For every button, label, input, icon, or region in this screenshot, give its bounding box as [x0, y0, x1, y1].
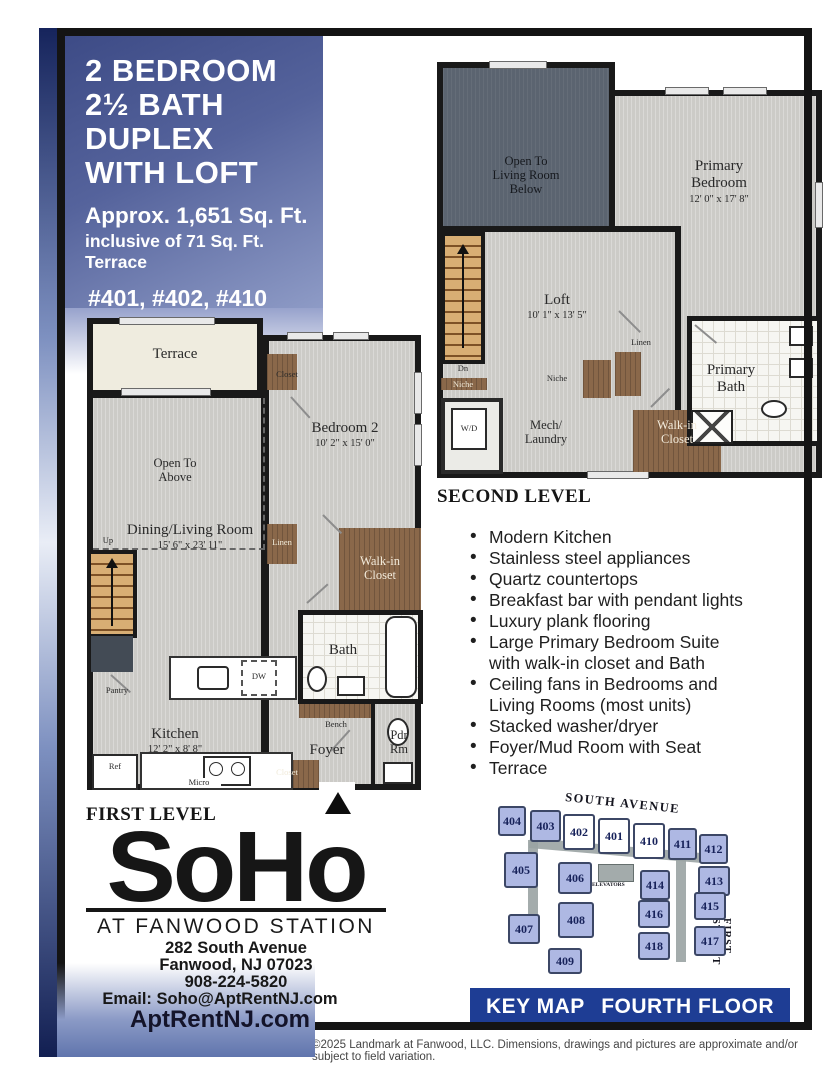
- keymap-canvas: SOUTH AVENUE FIRST STREET ELEVATORS 4044…: [470, 790, 790, 986]
- keymap-unit-415: 415: [694, 892, 726, 920]
- flyer-page: 2 BEDROOM 2½ BATH DUPLEX WITH LOFT Appro…: [0, 0, 838, 1080]
- keymap-unit-414: 414: [640, 870, 670, 900]
- keymap-unit-411: 411: [668, 828, 697, 860]
- street-label-top: SOUTH AVENUE: [564, 790, 680, 817]
- window: [815, 182, 823, 228]
- title-line-1: 2 BEDROOM: [85, 54, 323, 88]
- keymap-unit-410: 410: [633, 823, 665, 859]
- keymap-unit-417: 417: [694, 926, 726, 956]
- area-note: inclusive of 71 Sq. Ft. Terrace: [85, 231, 323, 273]
- elevators-label: ELEVATORS: [592, 882, 625, 888]
- keymap-unit-403: 403: [530, 810, 561, 842]
- keymap-unit-405: 405: [504, 852, 538, 888]
- left-gradient-stripe: [39, 28, 57, 1057]
- keymap-unit-401: 401: [598, 818, 630, 854]
- unit-numbers: #401, #402, #410: [85, 285, 323, 312]
- title-line-4: WITH LOFT: [85, 156, 323, 190]
- keymap-unit-402: 402: [563, 814, 595, 850]
- corridor: [676, 856, 686, 962]
- keymap-unit-406: 406: [558, 862, 592, 894]
- copyright-text: ©2025 Landmark at Fanwood, LLC. Dimensio…: [312, 1039, 820, 1063]
- keymap-unit-416: 416: [638, 900, 670, 928]
- website-url: AptRentNJ.com: [70, 1006, 370, 1034]
- keymap-unit-404: 404: [498, 806, 526, 836]
- keymap-unit-418: 418: [638, 932, 670, 960]
- keymap-unit-409: 409: [548, 948, 582, 974]
- keymap-unit-408: 408: [558, 902, 594, 938]
- title-line-3: DUPLEX: [85, 122, 323, 156]
- title-box: 2 BEDROOM 2½ BATH DUPLEX WITH LOFT Appro…: [65, 36, 323, 308]
- elevator-block: [598, 864, 634, 882]
- title-line-2: 2½ BATH: [85, 88, 323, 122]
- keymap-unit-407: 407: [508, 914, 540, 944]
- approx-area: Approx. 1,651 Sq. Ft.: [85, 203, 323, 229]
- keymap-unit-412: 412: [699, 834, 728, 864]
